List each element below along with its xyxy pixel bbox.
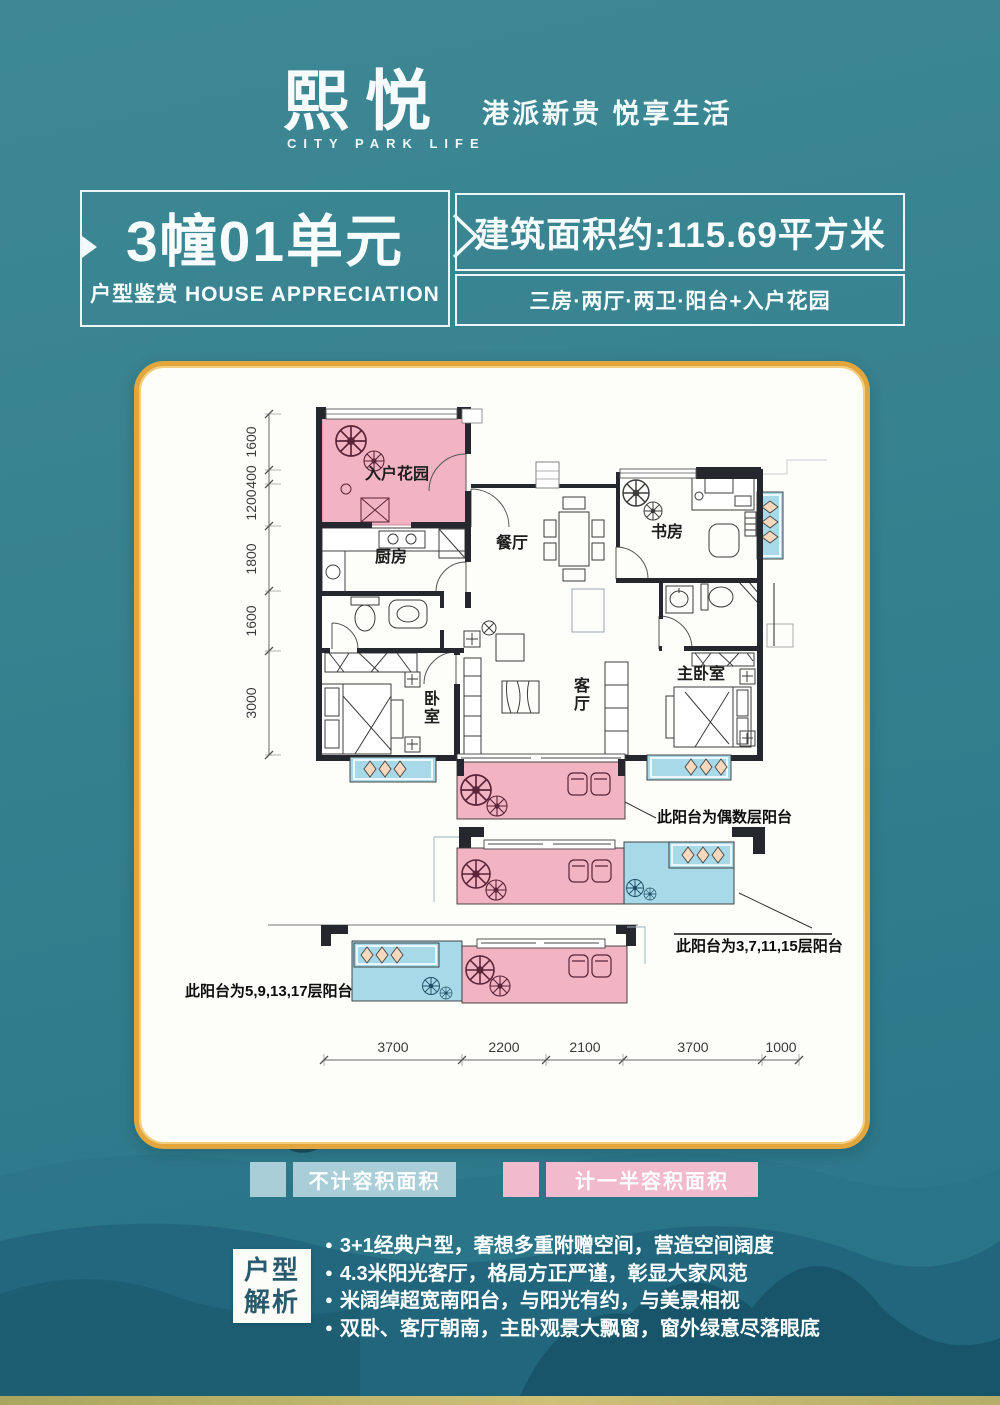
room-label-dining: 餐厅 [495, 533, 528, 552]
analysis-bullets: 3+1经典户型，奢想多重附赠空间，营造空间阔度 4.3米阳光客厅，格局方正严谨，… [325, 1232, 885, 1342]
dimension-chain-vertical [265, 410, 281, 759]
room-label-study: 书房 [651, 522, 683, 541]
brand-logo: 熙悦 [283, 48, 447, 144]
unit-title: 3幢01单元 [82, 214, 448, 271]
legend-swatch-blue [250, 1162, 286, 1197]
dim-v-6: 3000 [243, 687, 259, 718]
analysis-title-box: 户型 解析 [233, 1249, 311, 1323]
dim-v-1: 1600 [243, 426, 259, 457]
area-box: 建筑面积约:115.69平方米 [455, 193, 905, 271]
analysis-bullet: 双卧、客厅朝南，主卧观景大飘窗，窗外绿意尽落眼底 [325, 1315, 885, 1343]
brand-tagline: 港派新贵 悦享生活 [482, 92, 733, 131]
room-label-master: 主卧室 [677, 664, 725, 683]
room-label-bedroom: 卧室 [424, 690, 440, 726]
room-label-living: 客厅 [574, 676, 591, 713]
analysis-title-line1: 户型 [244, 1254, 300, 1287]
analysis-bullet: 4.3米阳光客厅，格局方正严谨，彰显大家风范 [325, 1260, 885, 1288]
balcony-note-odd-a: 此阳台为3,7,11,15层阳台 [676, 937, 843, 955]
dim-h-3: 2100 [569, 1039, 600, 1055]
dim-h-1: 3700 [377, 1039, 408, 1055]
analysis-bullet: 3+1经典户型，奢想多重附赠空间，营造空间阔度 [325, 1232, 885, 1260]
analysis-bullet: 米阔绰超宽南阳台，与阳光有约，与美景相视 [325, 1287, 885, 1315]
balcony-even [457, 759, 625, 819]
layout-text: 三房·两厅·两卫·阳台+入户花园 [529, 285, 830, 315]
unit-title-box: 3幢01单元 户型鉴赏 HOUSE APPRECIATION [80, 190, 450, 327]
dim-h-2: 2200 [488, 1039, 519, 1055]
legend-label-pink: 计一半容积面积 [546, 1162, 758, 1197]
layout-box: 三房·两厅·两卫·阳台+入户花园 [455, 274, 905, 326]
room-label-kitchen: 厨房 [375, 547, 407, 566]
dimension-chain-horizontal [320, 1054, 803, 1066]
arrow-right-icon [82, 236, 97, 258]
balcony-variant-a [434, 827, 765, 904]
dim-v-5: 1600 [243, 605, 259, 636]
bay-window-left [350, 757, 436, 782]
dim-v-4: 1800 [243, 543, 259, 574]
dim-v-3: 1200 [243, 489, 259, 520]
dim-v-2: 400 [243, 465, 259, 489]
dim-h-5: 1000 [765, 1039, 796, 1055]
room-label-garden: 入户花园 [365, 464, 429, 483]
legend-label-blue: 不计容积面积 [293, 1162, 456, 1197]
balcony-note-odd-b: 此阳台为5,9,13,17层阳台 [185, 982, 353, 1000]
floorplan-card: 入户花园 厨房 餐厅 书房 卧室 客厅 主卧室 1600 400 1200 18… [134, 361, 870, 1149]
unit-subtitle: 户型鉴赏 HOUSE APPRECIATION [82, 278, 448, 308]
brand-logo-subtext: CITY PARK LIFE [287, 136, 486, 151]
dim-h-4: 3700 [677, 1039, 708, 1055]
floorplan-svg: 入户花园 厨房 餐厅 书房 卧室 客厅 主卧室 1600 400 1200 18… [139, 366, 865, 1144]
bay-window-right [647, 755, 731, 780]
balcony-note-even: 此阳台为偶数层阳台 [657, 808, 792, 826]
page-edge-strip [0, 1396, 1000, 1405]
analysis-title-line2: 解析 [244, 1286, 300, 1319]
brochure-page: 熙悦 CITY PARK LIFE 港派新贵 悦享生活 3幢01单元 户型鉴赏 … [0, 0, 1000, 1405]
legend-swatch-pink [503, 1162, 539, 1197]
area-text: 建筑面积约:115.69平方米 [474, 207, 886, 258]
